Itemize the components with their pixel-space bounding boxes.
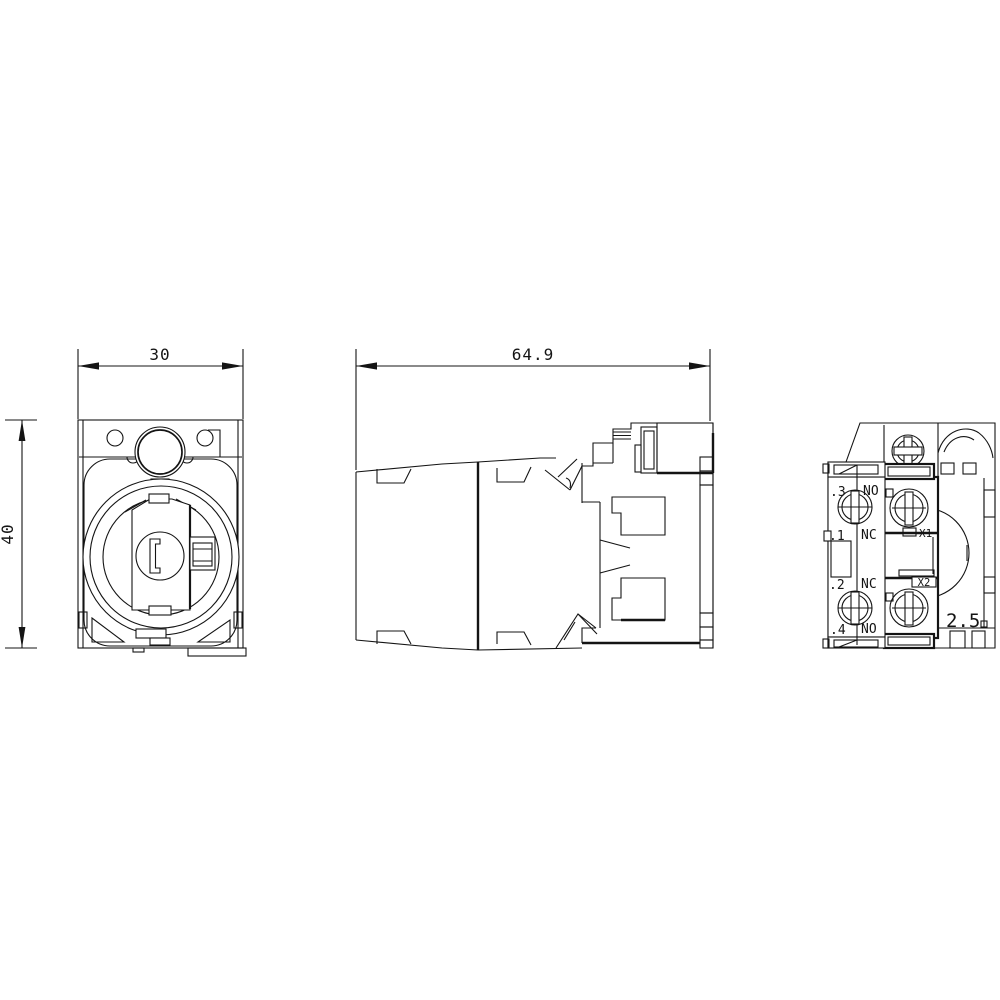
rail-segment bbox=[700, 457, 713, 471]
terminal-1-type: NC bbox=[861, 528, 877, 543]
arrowhead-icon bbox=[222, 362, 243, 369]
latch-line bbox=[578, 614, 596, 628]
terminal-3-label: .3 bbox=[830, 485, 846, 500]
side-view: 64.9 bbox=[356, 345, 713, 650]
plate-tab bbox=[149, 494, 169, 503]
terminal-3-type: NO bbox=[863, 484, 879, 499]
latch-line bbox=[558, 459, 577, 477]
holder-notch bbox=[497, 632, 531, 645]
rail-segment bbox=[700, 627, 713, 640]
front-view: 30 40 bbox=[0, 345, 246, 656]
terminal-screw-bottom bbox=[838, 591, 872, 625]
plate-tab bbox=[149, 606, 171, 615]
latch-line bbox=[545, 470, 570, 490]
mounting-hole bbox=[107, 430, 123, 446]
terminal-housing bbox=[657, 423, 713, 473]
conductor-size-label: 2.5 bbox=[946, 610, 980, 632]
technical-drawing: 30 40 bbox=[0, 0, 1000, 1000]
technical-drawing-page: 30 40 bbox=[0, 0, 1000, 1000]
foot-tab bbox=[188, 648, 246, 656]
terminal-1-label: .1 bbox=[829, 529, 845, 544]
contact-cavity bbox=[612, 497, 665, 535]
dimension-height: 40 bbox=[0, 420, 37, 648]
foot-tab bbox=[133, 648, 144, 652]
cap-top bbox=[356, 462, 478, 472]
rail-segment bbox=[700, 613, 713, 627]
arrowhead-icon bbox=[78, 362, 99, 369]
dimension-width-label: 30 bbox=[149, 345, 170, 364]
holder-top bbox=[478, 458, 556, 462]
holder-notch bbox=[497, 467, 531, 482]
bottom-tab bbox=[136, 629, 166, 638]
terminal-x1-label: X1 bbox=[919, 527, 932, 540]
terminal-4-label: .4 bbox=[830, 623, 846, 638]
contact-block: .3 NO .1 NC .2 NC .4 NO bbox=[823, 462, 885, 648]
terminal-4-type: NO bbox=[861, 622, 877, 637]
lamp-module: X1 X2 bbox=[883, 435, 938, 648]
block-window bbox=[831, 541, 851, 577]
terminal-2-label: .2 bbox=[829, 578, 845, 593]
contact-cavity bbox=[612, 578, 665, 620]
mounting-hole bbox=[197, 430, 213, 446]
dimension-height-label: 40 bbox=[0, 523, 17, 544]
front-body bbox=[78, 420, 246, 656]
wire-clamp bbox=[884, 464, 934, 479]
latch-line bbox=[570, 466, 582, 490]
arrowhead-icon bbox=[356, 362, 377, 369]
contact-window-inner bbox=[193, 543, 212, 566]
terminal-screw-x1 bbox=[890, 489, 928, 527]
holder-bottom bbox=[478, 648, 582, 650]
rail-segment bbox=[700, 640, 713, 648]
terminal-x2-label: X2 bbox=[918, 577, 931, 589]
latch-line bbox=[564, 622, 575, 640]
dimension-width: 30 bbox=[78, 345, 243, 419]
terminal-screw-side bbox=[641, 427, 657, 473]
latch-hook bbox=[566, 478, 571, 488]
button-head bbox=[135, 427, 185, 477]
wire-clamp bbox=[884, 634, 934, 648]
cap-notch bbox=[377, 469, 411, 483]
terminal-2-type: NC bbox=[861, 577, 877, 592]
block-line bbox=[600, 540, 630, 548]
rear-view: 2.5 X1 X2 bbox=[823, 423, 995, 648]
side-body bbox=[356, 423, 713, 650]
phillips-slot bbox=[894, 447, 922, 455]
arrowhead-icon bbox=[19, 627, 26, 648]
terminal-flange bbox=[635, 445, 641, 472]
cap-bottom bbox=[356, 640, 478, 650]
bottom-tab bbox=[150, 638, 170, 645]
dimension-depth-label: 64.9 bbox=[512, 345, 555, 364]
block-line bbox=[600, 565, 630, 573]
terminal-screw-x2 bbox=[890, 589, 928, 627]
rail-body bbox=[700, 485, 713, 613]
arrowhead-icon bbox=[689, 362, 710, 369]
arrowhead-icon bbox=[19, 420, 26, 441]
